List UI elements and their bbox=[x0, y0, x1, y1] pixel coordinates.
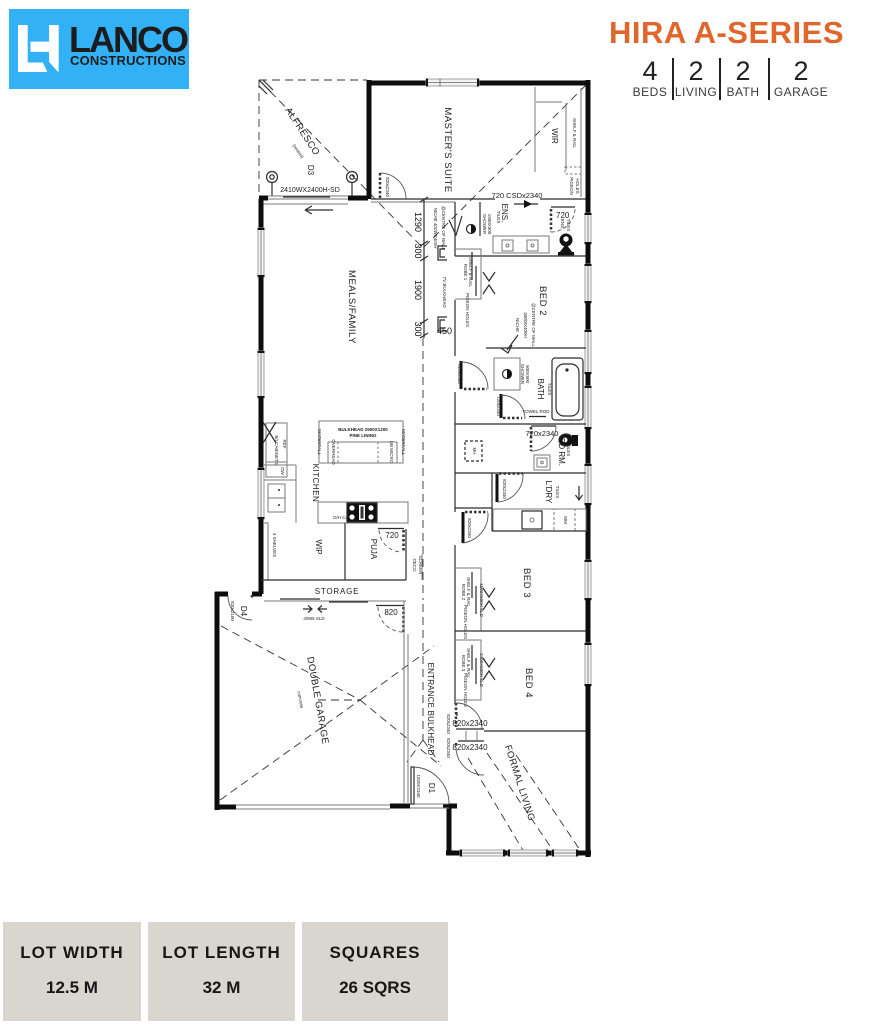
svg-text:820x2340: 820x2340 bbox=[502, 479, 507, 499]
svg-text:L'DRY: L'DRY bbox=[544, 481, 553, 504]
svg-text:WM: WM bbox=[563, 516, 568, 524]
svg-text:720: 720 bbox=[385, 531, 399, 540]
svg-text:2410WX2400H-SD: 2410WX2400H-SD bbox=[280, 187, 340, 194]
svg-text:SHELF & RAIL: SHELF & RAIL bbox=[466, 577, 471, 608]
svg-text:820x2340: 820x2340 bbox=[385, 177, 390, 197]
svg-text:@CENTRE OF WALL: @CENTRE OF WALL bbox=[441, 206, 446, 250]
svg-text:DW: DW bbox=[280, 467, 285, 475]
svg-text:@CENTRE OF WALL: @CENTRE OF WALL bbox=[531, 303, 536, 347]
svg-text:DOUBLE GARAGE: DOUBLE GARAGE bbox=[304, 656, 330, 745]
svg-text:TOWEL ROD: TOWEL ROD bbox=[522, 409, 550, 414]
svg-text:WIP: WIP bbox=[314, 539, 323, 554]
svg-text:BED 3: BED 3 bbox=[521, 568, 532, 598]
svg-text:BATH: BATH bbox=[536, 379, 545, 400]
svg-text:WIR: WIR bbox=[550, 128, 559, 144]
svg-text:720 CSDx2340: 720 CSDx2340 bbox=[492, 191, 543, 200]
svg-text:PIGEON HOLES: PIGEON HOLES bbox=[465, 293, 470, 327]
svg-text:PINE LINING: PINE LINING bbox=[349, 433, 377, 438]
svg-text:FORMAL LIVING: FORMAL LIVING bbox=[502, 744, 537, 823]
svg-text:BED 2: BED 2 bbox=[537, 286, 548, 316]
svg-text:820x2340: 820x2340 bbox=[452, 719, 488, 728]
svg-text:820x2340: 820x2340 bbox=[452, 743, 488, 752]
svg-text:TILES: TILES bbox=[496, 211, 501, 224]
svg-text:MEALS/FAMILY: MEALS/FAMILY bbox=[346, 270, 357, 344]
svg-text:820x2340: 820x2340 bbox=[446, 738, 451, 758]
svg-text:DECO: DECO bbox=[412, 558, 417, 572]
svg-text:BULKHEAD 2500X1200: BULKHEAD 2500X1200 bbox=[338, 427, 388, 432]
svg-text:D3: D3 bbox=[306, 165, 315, 176]
svg-text:HOLES: HOLES bbox=[575, 178, 580, 193]
svg-text:SHELF & RAIL: SHELF & RAIL bbox=[468, 257, 473, 288]
svg-text:400WX400H: 400WX400H bbox=[523, 312, 528, 338]
svg-text:KITCHEN: KITCHEN bbox=[311, 464, 320, 503]
svg-text:NICHE: NICHE bbox=[515, 318, 520, 332]
svg-text:TILES: TILES bbox=[566, 219, 571, 232]
svg-text:1020X2340: 1020X2340 bbox=[416, 774, 421, 798]
svg-text:300: 300 bbox=[413, 243, 423, 258]
svg-text:SHOWER: SHOWER bbox=[482, 214, 487, 235]
svg-text:concrete: concrete bbox=[297, 691, 305, 709]
svg-text:TILES: TILES bbox=[547, 383, 552, 396]
svg-text:450: 450 bbox=[437, 326, 452, 336]
svg-text:NICHE 400WX400H: NICHE 400WX400H bbox=[433, 208, 438, 250]
svg-text:ROBE 3: ROBE 3 bbox=[461, 655, 466, 672]
svg-text:REF: REF bbox=[282, 440, 287, 449]
svg-text:SHOWER: SHOWER bbox=[520, 364, 525, 385]
svg-text:B/I CABINETS: B/I CABINETS bbox=[274, 435, 279, 464]
svg-text:2400X600H SLD: 2400X600H SLD bbox=[479, 653, 484, 688]
svg-text:TILES: TILES bbox=[566, 444, 571, 457]
svg-text:D4: D4 bbox=[239, 606, 248, 617]
svg-text:TILES: TILES bbox=[555, 486, 560, 499]
svg-text:820x2100: 820x2100 bbox=[230, 601, 235, 621]
svg-text:900X900: 900X900 bbox=[525, 365, 530, 384]
svg-text:4 SHELVES: 4 SHELVES bbox=[272, 533, 277, 557]
svg-text:ENTRANCE BULKHEAD: ENTRANCE BULKHEAD bbox=[426, 663, 435, 756]
svg-text:WATERFALL: WATERFALL bbox=[401, 429, 406, 456]
svg-text:ROBE 1: ROBE 1 bbox=[463, 264, 468, 281]
svg-text:D1: D1 bbox=[427, 783, 436, 794]
svg-text:820x2340: 820x2340 bbox=[467, 518, 472, 538]
svg-text:ROBE 2: ROBE 2 bbox=[461, 584, 466, 601]
svg-text:4/905 SLD: 4/905 SLD bbox=[303, 616, 325, 621]
svg-text:PIGEON: PIGEON bbox=[569, 177, 574, 195]
svg-text:720x2340: 720x2340 bbox=[496, 396, 501, 416]
svg-text:820x2340: 820x2340 bbox=[446, 714, 451, 734]
svg-text:PUJA: PUJA bbox=[369, 539, 378, 560]
svg-text:OVERHEAD: OVERHEAD bbox=[331, 439, 336, 465]
svg-text:820: 820 bbox=[384, 608, 398, 617]
svg-text:820x2340: 820x2340 bbox=[457, 364, 462, 384]
svg-text:MH: MH bbox=[472, 448, 477, 455]
svg-text:TV BULKHEAD: TV BULKHEAD bbox=[442, 276, 447, 308]
svg-text:BED 4: BED 4 bbox=[523, 668, 534, 698]
svg-text:SHELF & RAIL: SHELF & RAIL bbox=[572, 118, 577, 149]
svg-text:PIGEON HOLES: PIGEON HOLES bbox=[463, 605, 468, 639]
svg-text:1290: 1290 bbox=[413, 212, 423, 232]
svg-text:(recess): (recess) bbox=[292, 143, 306, 160]
svg-text:ENS.: ENS. bbox=[560, 219, 565, 230]
svg-text:1900: 1900 bbox=[413, 280, 423, 300]
svg-text:UB MICRO: UB MICRO bbox=[389, 441, 394, 464]
svg-text:1900X900: 1900X900 bbox=[487, 214, 492, 235]
svg-text:PD RM.: PD RM. bbox=[557, 438, 566, 466]
svg-text:STORAGE: STORAGE bbox=[315, 587, 360, 596]
svg-text:WATERFALL: WATERFALL bbox=[317, 429, 322, 456]
svg-text:300: 300 bbox=[413, 321, 423, 336]
svg-text:MASTER'S SUITE: MASTER'S SUITE bbox=[442, 107, 453, 192]
svg-text:1500X600H SLD: 1500X600H SLD bbox=[479, 583, 484, 618]
svg-text:ALFRESCO: ALFRESCO bbox=[282, 105, 321, 157]
svg-text:PIGEON HOLES: PIGEON HOLES bbox=[463, 673, 468, 707]
